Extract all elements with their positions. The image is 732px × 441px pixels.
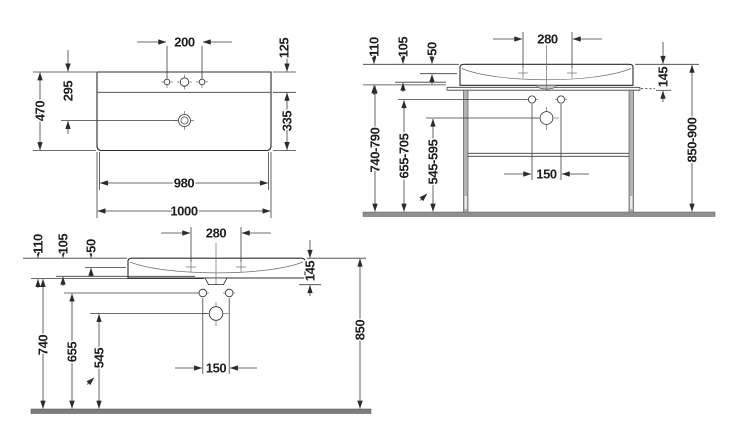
console-leg-right xyxy=(629,90,634,212)
dim-655-label: 655 xyxy=(65,342,80,363)
dim-150-label: 150 xyxy=(206,361,227,376)
dim-110-105-50-console: 110 105 50 xyxy=(363,37,459,95)
plan-view: 200 125 335 470 295 xyxy=(33,35,297,219)
dim-740-790: 740-790 xyxy=(368,86,383,212)
dim-280-label: 280 xyxy=(537,32,558,47)
dim-655-705-label: 655-705 xyxy=(397,133,412,178)
console-leg-left xyxy=(464,90,469,212)
floor-line xyxy=(363,212,715,217)
dim-335-label: 335 xyxy=(280,111,295,132)
dim-850-900: 850-900 xyxy=(685,65,700,211)
dim-145-console: 145 xyxy=(635,42,699,102)
leg-foot-right xyxy=(630,196,632,209)
dim-545-label: 545 xyxy=(92,348,107,369)
dim-545-595: 545-595 xyxy=(420,118,539,211)
dim-1000-label: 1000 xyxy=(170,204,197,219)
dim-50-label: 50 xyxy=(84,239,99,253)
adjustable-arrow-icon xyxy=(87,378,94,385)
supply-connections xyxy=(197,289,236,297)
dim-980-label: 980 xyxy=(174,176,195,191)
leg-foot-left xyxy=(465,196,467,209)
dim-150-label: 150 xyxy=(536,167,557,182)
dim-105-label: 105 xyxy=(396,37,411,58)
dim-145-label: 145 xyxy=(303,261,318,282)
dim-655-705: 655-705 xyxy=(397,100,528,212)
drain-connection xyxy=(204,302,229,326)
dim-280-console: 280 xyxy=(493,32,602,69)
dim-545-595-label: 545-595 xyxy=(426,139,441,184)
adjustable-arrow-icon xyxy=(420,194,427,201)
dim-145-label: 145 xyxy=(656,67,671,88)
dim-145-wall: 145 xyxy=(299,240,321,296)
floor-line xyxy=(31,409,371,414)
dim-545: 545 xyxy=(87,314,208,409)
dim-850-label: 850 xyxy=(353,320,368,341)
dim-110-label: 110 xyxy=(31,234,46,254)
dim-980: 980 xyxy=(100,152,269,191)
console-shelf xyxy=(468,153,629,156)
washbasin-drawing: 200 125 335 470 295 xyxy=(0,0,732,441)
technical-drawing-page: 200 125 335 470 295 xyxy=(0,0,732,441)
dim-105-label: 105 xyxy=(56,234,71,255)
console-view: 280 110 105 50 145 7 xyxy=(363,32,715,217)
dim-50-label: 50 xyxy=(425,42,440,56)
dim-850-900-label: 850-900 xyxy=(685,117,700,162)
dim-740-790-label: 740-790 xyxy=(368,127,383,172)
dim-200-label: 200 xyxy=(174,35,195,50)
dim-740-label: 740 xyxy=(36,335,51,356)
dim-110-label: 110 xyxy=(367,37,382,57)
dim-125: 125 xyxy=(273,38,296,72)
dim-335: 335 xyxy=(273,92,296,150)
wall-view: 280 110 105 50 145 740 xyxy=(23,226,371,414)
supply-connections xyxy=(526,96,567,103)
dim-470-label: 470 xyxy=(33,101,48,122)
dim-280-label: 280 xyxy=(206,226,227,241)
dim-655: 655 xyxy=(64,293,198,408)
dim-295-label: 295 xyxy=(61,81,76,102)
dim-740: 740 xyxy=(36,279,51,408)
drain-connection xyxy=(534,107,559,130)
dim-125-label: 125 xyxy=(277,38,292,59)
